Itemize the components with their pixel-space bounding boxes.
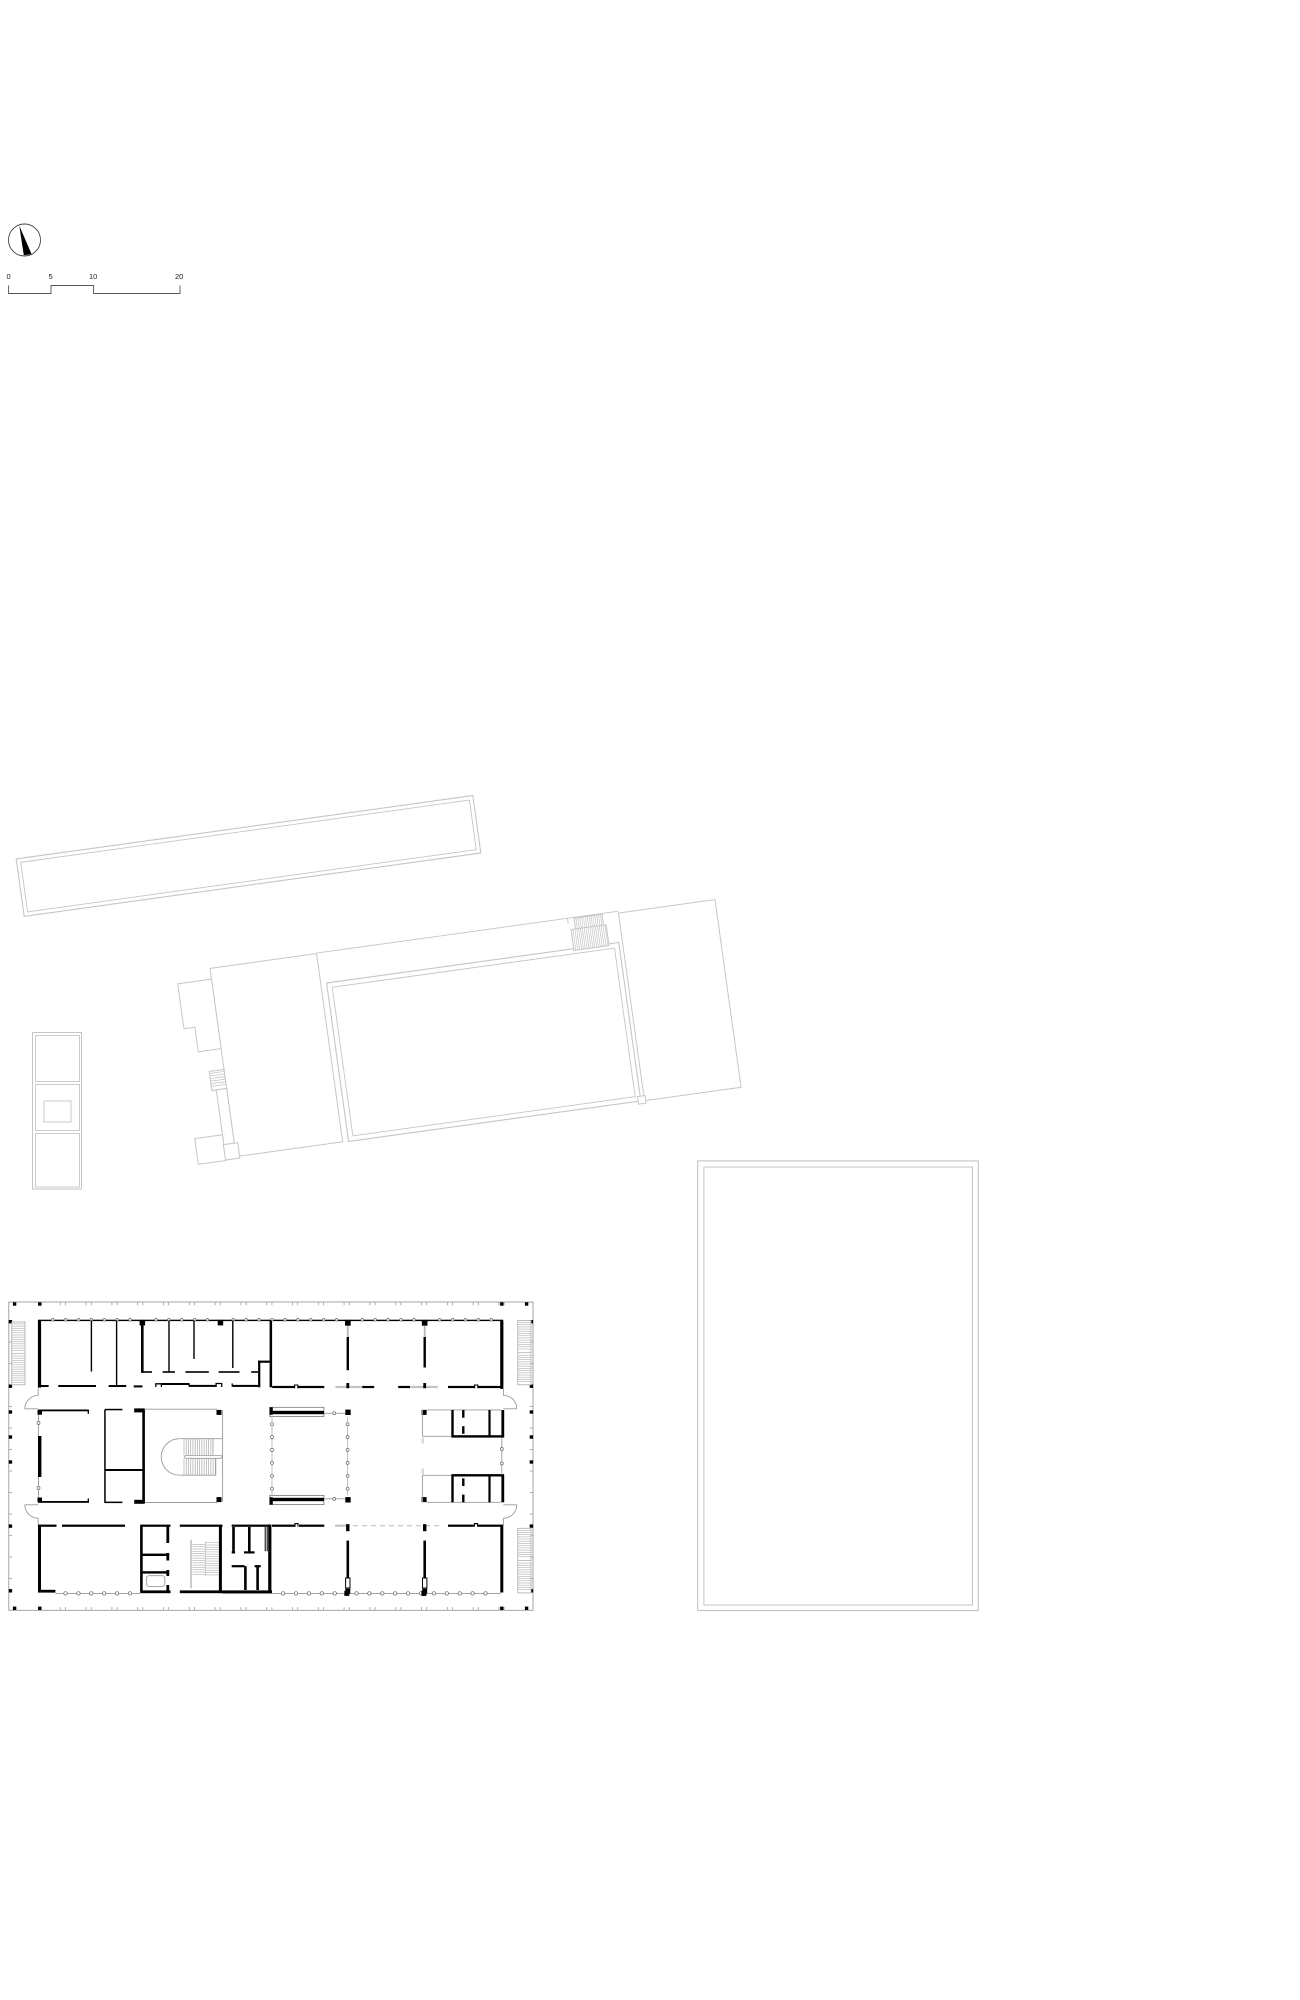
svg-text:5: 5 xyxy=(49,272,53,281)
svg-text:10: 10 xyxy=(89,272,97,281)
svg-text:0: 0 xyxy=(7,272,11,281)
svg-text:20: 20 xyxy=(175,272,183,281)
